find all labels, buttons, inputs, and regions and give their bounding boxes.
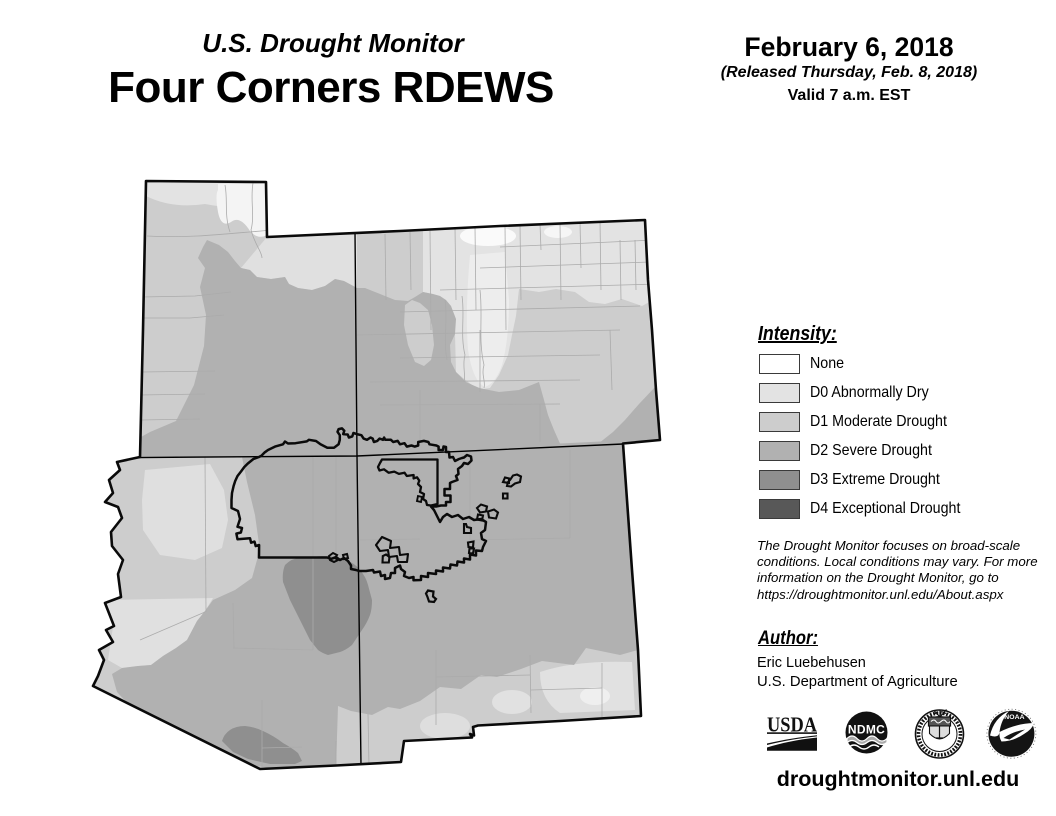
svg-text:NDMC: NDMC — [848, 723, 885, 737]
svg-text:NOAA: NOAA — [1004, 714, 1024, 721]
